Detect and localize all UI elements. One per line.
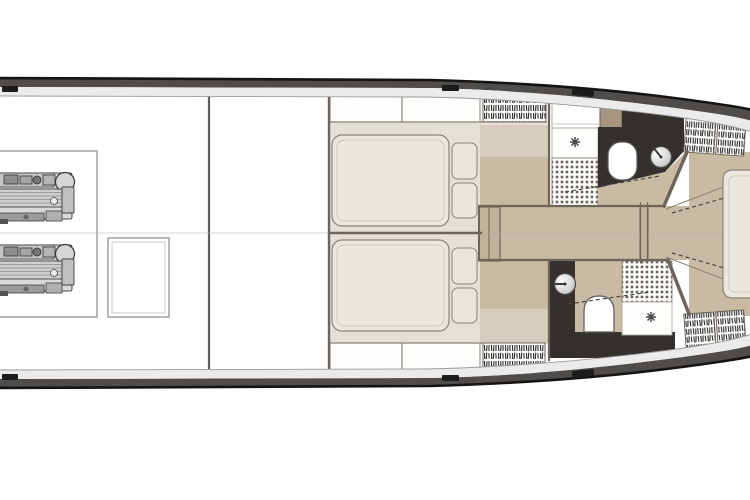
cleat xyxy=(2,374,18,380)
bow-bed xyxy=(723,170,750,298)
shower-tile-floor xyxy=(622,261,672,302)
cleat xyxy=(2,86,18,92)
cabin-port-floor-tan xyxy=(480,157,548,207)
double-bed xyxy=(332,135,449,226)
engine-hatch xyxy=(108,238,169,317)
floor-plan-svg: Open area Engine room Engine xyxy=(0,0,750,500)
shower-drain: Shower drain xyxy=(646,312,656,322)
cabin-starboard-dresser xyxy=(480,309,548,343)
double-bed xyxy=(332,240,449,331)
pillow xyxy=(452,248,477,284)
pillow xyxy=(452,143,477,179)
engine-port: Engine xyxy=(0,173,75,225)
shower-tile-floor xyxy=(552,158,598,206)
toilet xyxy=(608,142,637,180)
toilet xyxy=(584,296,614,332)
shower-tray xyxy=(622,302,672,335)
pillow xyxy=(452,183,477,218)
cleat xyxy=(442,375,459,381)
sink-drain-dot xyxy=(660,156,663,159)
engine-starboard: Engine xyxy=(0,245,75,297)
cleat xyxy=(442,85,459,91)
shower-drain: Shower drain xyxy=(570,137,580,147)
pillow xyxy=(452,288,477,323)
cabin-starboard-floor-tan xyxy=(480,259,548,309)
floor-plan-page: Open area Engine room Engine xyxy=(0,0,750,500)
cabin-port-dresser xyxy=(480,125,548,157)
sink-drain-dot xyxy=(564,283,567,286)
